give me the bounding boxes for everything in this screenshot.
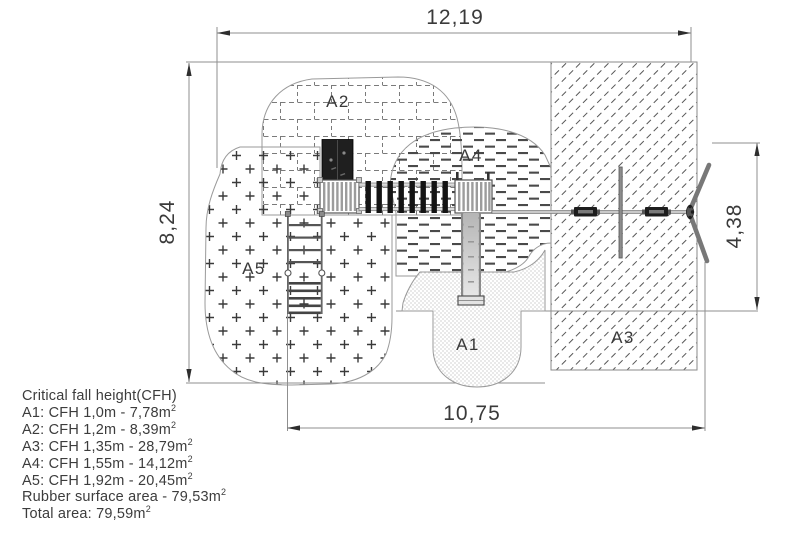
technical-drawing-canvas: 12,19 8,24 4,38 10,75 A2 A4 A5 A1 A3 Cri… [0,0,800,536]
slide [458,213,484,305]
beam-seat [571,207,600,217]
dim-width-top: 12,19 [426,6,484,29]
label-area-a2: A2 [326,92,350,111]
legend-entry-a4: A4: CFH 1,55m - 14,12m2 [22,456,226,473]
label-area-a5: A5 [242,259,266,278]
crossbar [619,167,622,258]
legend-entry-rubber: Rubber surface area - 79,53m2 [22,489,226,506]
beam-seat [642,207,671,217]
dim-height-right: 4,38 [723,204,746,249]
deck-left [318,178,362,214]
legend-entry-a5: A5: CFH 1,92m - 20,45m2 [22,473,226,490]
cfh-legend: Critical fall height(CFH) A1: CFH 1,0m -… [22,388,226,523]
label-area-a4: A4 [459,146,483,165]
zone-a3-shape [551,62,697,370]
legend-entry-total: Total area: 79,59m2 [22,506,226,523]
label-area-a3: A3 [611,328,635,347]
legend-entry-a3: A3: CFH 1,35m - 28,79m2 [22,439,226,456]
tower-platform [322,140,353,182]
legend-entry-a2: A2: CFH 1,2m - 8,39m2 [22,422,226,439]
dim-width-bottom: 10,75 [443,402,501,425]
legend-title: Critical fall height(CFH) [22,388,226,405]
legend-entry-a1: A1: CFH 1,0m - 7,78m2 [22,405,226,422]
label-area-a1: A1 [456,335,480,354]
dim-height-left: 8,24 [156,200,179,245]
